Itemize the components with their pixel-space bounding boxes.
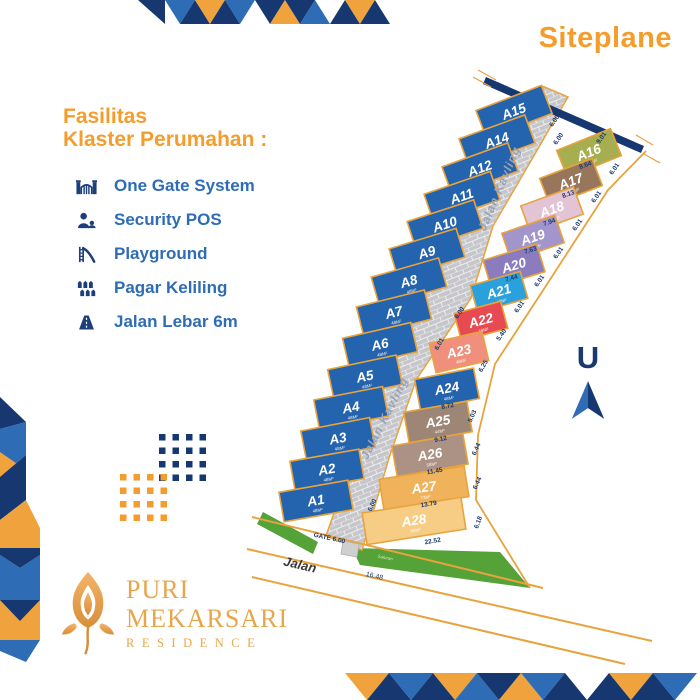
boundary-tick (636, 135, 653, 145)
frontage-dim: 16.48 (365, 571, 384, 582)
deco-dot (161, 501, 168, 508)
logo-line3: RESIDENCE (126, 636, 288, 651)
deco-dot (200, 475, 207, 482)
deco-dot (134, 488, 141, 495)
deco-dot (147, 501, 154, 508)
brand-logo: PURI MEKARSARI RESIDENCE (60, 570, 288, 656)
deco-dot (186, 448, 193, 455)
deco-dot (161, 515, 168, 522)
dim-label: 6.01 (533, 274, 546, 289)
deco-dot (120, 488, 127, 495)
deco-dot (120, 501, 127, 508)
deco-dot (134, 515, 141, 522)
deco-dot (161, 474, 168, 481)
plot-label: A2 (316, 461, 337, 479)
boundary-line (252, 577, 625, 664)
logo-flame-icon (60, 570, 116, 656)
deco-dot (173, 461, 180, 468)
deco-dot (159, 448, 166, 455)
deco-dot (147, 474, 154, 481)
deco-dot (186, 475, 193, 482)
deco-dot (161, 488, 168, 495)
boundary-tick (644, 154, 660, 163)
dim-label: 22.52 (424, 537, 442, 547)
siteplan-poster: Siteplane Fasilitas Klaster Perumahan : (0, 0, 700, 700)
plot-label: A1 (305, 492, 326, 510)
deco-dot (134, 474, 141, 481)
dim-label: 6.00 (552, 132, 565, 147)
dim-label: 6.01 (590, 190, 603, 205)
deco-dot (147, 488, 154, 495)
deco-dot (134, 501, 141, 508)
deco-dot (173, 448, 180, 455)
deco-dot (173, 475, 180, 482)
deco-dot (186, 461, 193, 468)
deco-dot (186, 434, 193, 441)
plot-a28: A2885M² (362, 497, 466, 544)
deco-dot (159, 461, 166, 468)
dim-label: 6.44 (471, 442, 483, 457)
dim-label: 6.44 (472, 476, 484, 491)
deco-dot (200, 448, 207, 455)
logo-line1: PURI (126, 576, 288, 605)
deco-dot (200, 434, 207, 441)
deco-dot (120, 474, 127, 481)
dim-label: 6.18 (473, 515, 484, 530)
deco-dot (200, 461, 207, 468)
deco-dot (159, 434, 166, 441)
logo-line2: MEKARSARI (126, 605, 288, 634)
deco-dot (147, 515, 154, 522)
deco-dot (173, 434, 180, 441)
dim-label: 6.01 (608, 162, 621, 177)
logo-text: PURI MEKARSARI RESIDENCE (126, 576, 288, 651)
deco-dot (120, 515, 127, 522)
